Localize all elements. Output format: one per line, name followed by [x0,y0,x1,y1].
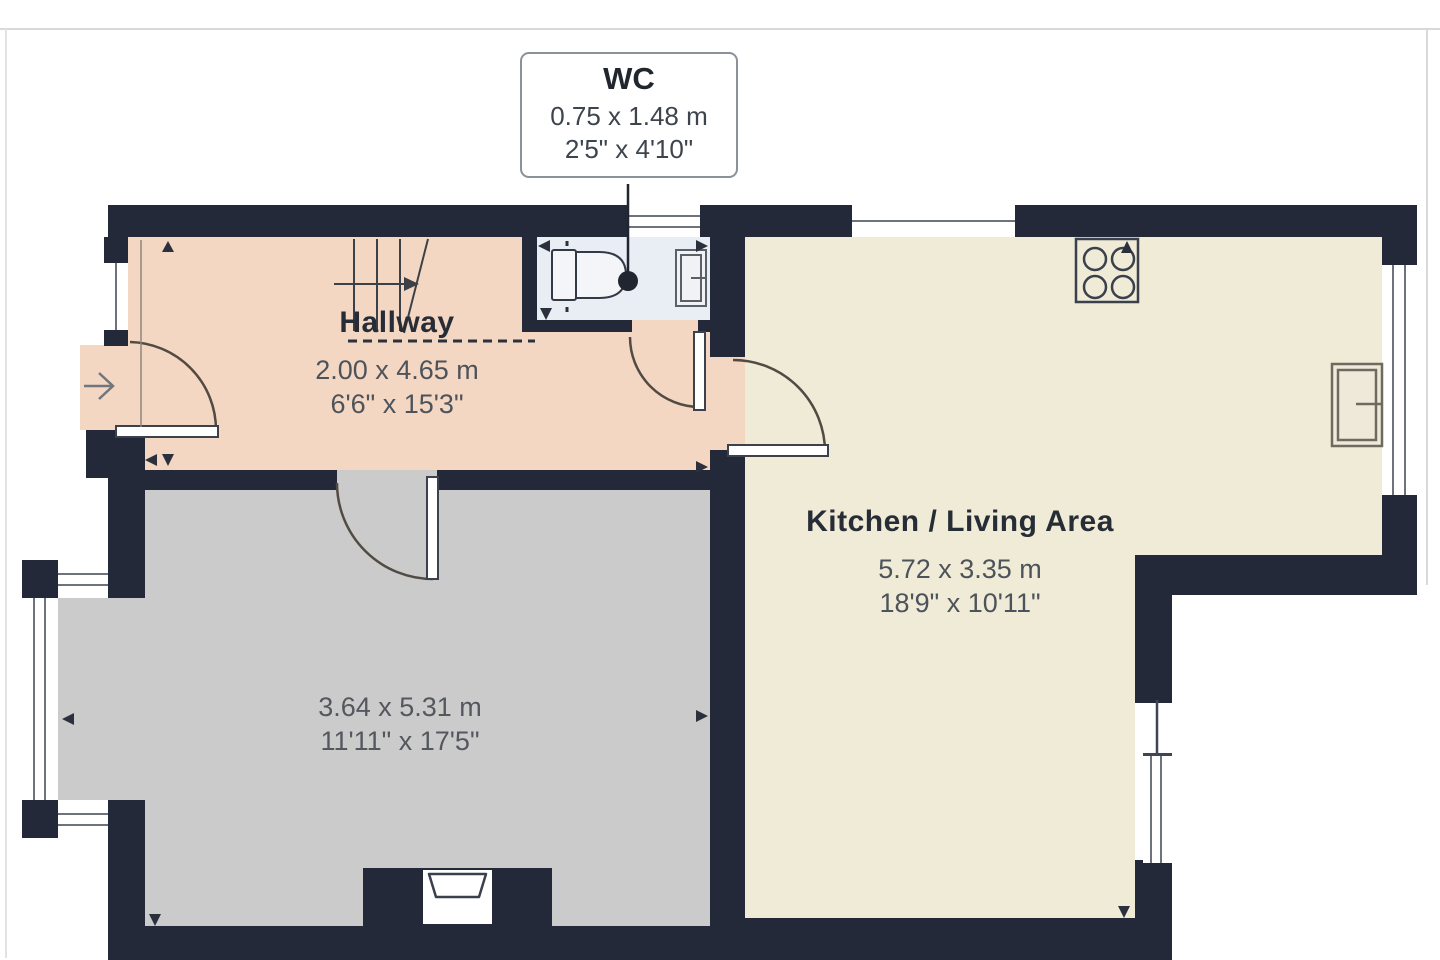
kitchen-name: Kitchen / Living Area [806,505,1114,539]
floor-reception-bay [58,598,145,800]
window-glazing-line [852,220,1015,222]
window [627,205,700,237]
window-glazing-line [1150,756,1152,863]
hallway-label: Hallway 2.00 x 4.65 m 6'6" x 15'3" [315,306,479,421]
wc-callout-imperial: 2'5" x 4'10" [526,133,732,166]
kitchen-metric: 5.72 x 3.35 m [806,552,1114,586]
floor-hallway-door-gap [80,345,128,430]
window [58,800,108,838]
window-glazing-line [627,226,700,228]
wc-callout: WC 0.75 x 1.48 m 2'5" x 4'10" [520,52,738,178]
wall-segment [108,926,745,960]
floor-kitchen-door-gap [710,357,745,450]
wall-segment [1015,205,1417,237]
wall-segment [1135,555,1417,595]
window-glazing-line [33,598,35,800]
window-glazing-line [44,598,46,800]
window-glazing-line [1160,756,1162,863]
wc-callout-metric: 0.75 x 1.48 m [526,100,732,133]
wall-segment [104,330,128,346]
wc-callout-title: WC [526,61,732,97]
wall-segment [22,800,58,838]
window [104,263,128,330]
wall-segment [522,237,537,332]
wall-segment [104,237,128,264]
floorplan-page: WC 0.75 x 1.48 m 2'5" x 4'10" Hallway 2.… [0,0,1440,960]
kitchen-label: Kitchen / Living Area 5.72 x 3.35 m 18'9… [806,505,1114,620]
reception-imperial: 11'11" x 17'5" [318,724,482,758]
floor-wc-door-gap [630,320,700,333]
wall-segment [22,560,58,598]
window-glazing-line [58,573,108,575]
window-glazing-line [58,813,108,815]
window-glazing-line [58,824,108,826]
reception-metric: 3.64 x 5.31 m [318,690,482,724]
window [22,598,58,800]
window-glazing-line [627,215,700,217]
wall-segment [710,205,745,357]
wall-segment [1135,595,1172,703]
window-glazing-line [115,263,117,330]
hallway-name: Hallway [315,306,479,340]
window-glazing-line [1404,265,1406,495]
wall-segment [108,470,145,598]
window-glazing-line [58,584,108,586]
page-left-border [5,29,7,958]
patio-door-panel [1143,753,1172,863]
window [852,205,1015,237]
hallway-metric: 2.00 x 4.65 m [315,353,479,387]
window [58,560,108,598]
wall-segment [145,470,337,490]
window [1382,265,1417,495]
kitchen-imperial: 18'9" x 10'11" [806,586,1114,620]
page-right-border [1426,29,1428,585]
reception-label: 3.64 x 5.31 m 11'11" x 17'5" [318,690,482,758]
wall-segment [745,918,1172,960]
hallway-imperial: 6'6" x 15'3" [315,387,479,421]
wall-segment [1382,237,1417,265]
floor-wc [537,237,710,320]
wall-segment [437,470,710,490]
floor-reception-door-gap [337,470,437,490]
wall-segment [710,450,745,960]
fireplace-recess [423,870,492,924]
window-glazing-line [1392,265,1394,495]
wall-segment [535,320,632,332]
page-top-border [0,28,1440,30]
wall-segment [1382,495,1417,557]
wall-segment [698,320,710,332]
wall-segment [108,205,627,237]
